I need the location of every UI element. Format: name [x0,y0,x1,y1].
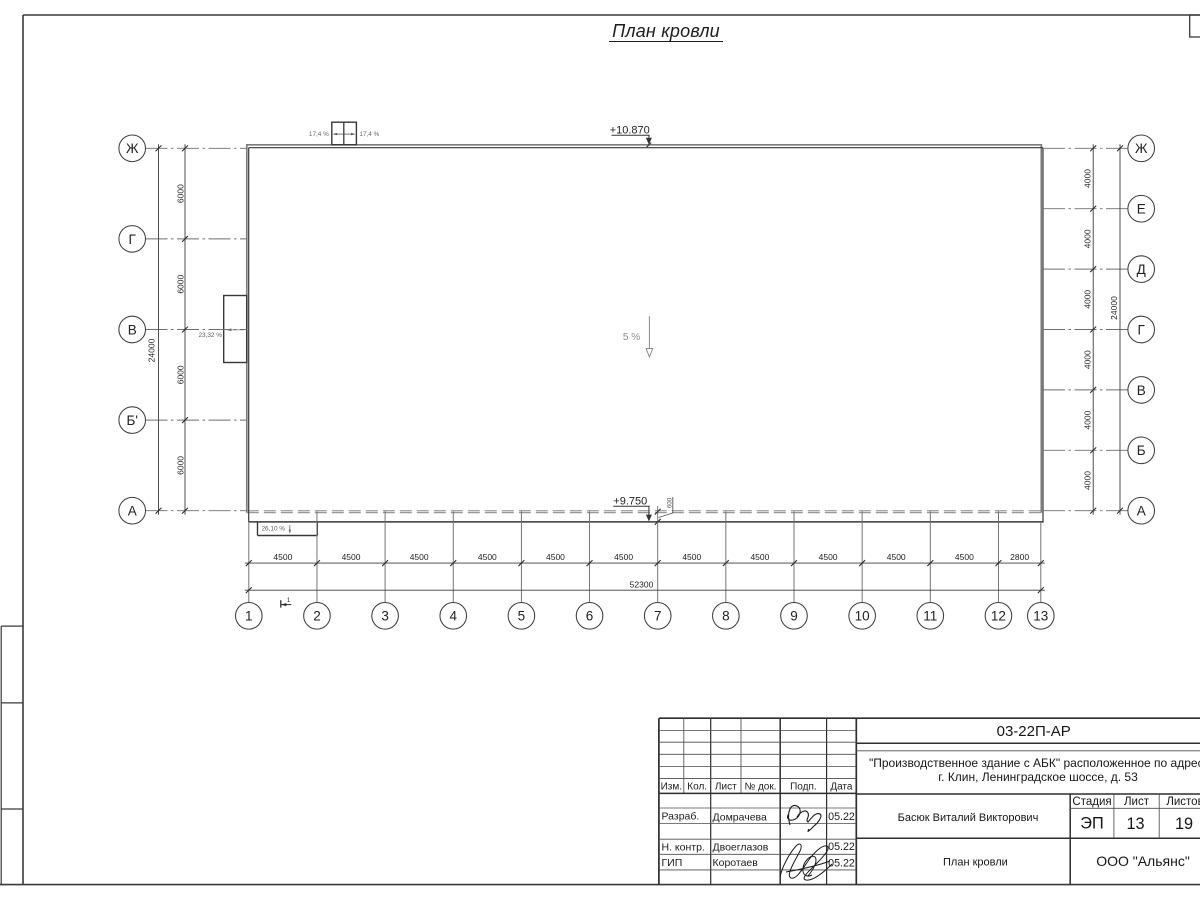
svg-text:4500: 4500 [546,552,565,562]
svg-text:03-22П-АР: 03-22П-АР [997,723,1071,740]
svg-text:Разраб.: Разраб. [662,810,700,822]
svg-text:В: В [1137,383,1146,398]
svg-text:"Производственное здание с АБК: "Производственное здание с АБК" располож… [869,756,1200,770]
svg-text:Н. контр.: Н. контр. [662,841,705,853]
svg-text:4000: 4000 [1082,290,1092,309]
svg-text:6000: 6000 [175,184,185,203]
svg-text:2800: 2800 [1010,552,1029,562]
svg-text:6000: 6000 [175,365,185,384]
svg-text:Лист: Лист [715,782,737,793]
svg-text:4000: 4000 [1082,229,1092,248]
svg-text:9: 9 [790,609,798,624]
svg-text:12: 12 [991,609,1006,624]
svg-text:ЭП: ЭП [1080,815,1103,833]
svg-text:Басюк Виталий Викторович: Басюк Виталий Викторович [898,812,1039,824]
svg-text:17,4 %: 17,4 % [309,131,329,138]
svg-text:4500: 4500 [682,552,701,562]
svg-text:05.22: 05.22 [828,811,855,823]
svg-text:Г: Г [129,232,137,247]
svg-text:6: 6 [586,609,594,624]
svg-text:4500: 4500 [273,552,292,562]
svg-text:4500: 4500 [887,552,906,562]
svg-text:4500: 4500 [819,552,838,562]
svg-text:Кол.: Кол. [687,782,707,793]
svg-text:Ж: Ж [126,141,139,156]
svg-text:3: 3 [381,609,389,624]
svg-text:52300: 52300 [630,579,654,589]
svg-text:4500: 4500 [342,552,361,562]
svg-text:4500: 4500 [955,552,974,562]
svg-text:24000: 24000 [1109,296,1119,320]
svg-text:Г: Г [1138,322,1146,337]
svg-text:Ж: Ж [1135,141,1148,156]
svg-text:Д: Д [1137,262,1146,277]
svg-text:ООО "Альянс": ООО "Альянс" [1096,853,1190,869]
svg-text:4000: 4000 [1082,350,1092,369]
svg-text:7: 7 [654,609,662,624]
svg-text:+9.750: +9.750 [613,495,647,507]
svg-text:Дата: Дата [830,782,853,793]
svg-text:+10.870: +10.870 [610,125,650,137]
svg-text:8: 8 [722,609,730,624]
svg-text:24000: 24000 [146,338,156,362]
svg-text:Б': Б' [126,413,137,428]
svg-text:600: 600 [666,497,673,508]
svg-text:6000: 6000 [175,274,185,293]
svg-text:ГИП: ГИП [662,857,683,869]
svg-text:19: 19 [1175,815,1193,833]
svg-text:4000: 4000 [1082,471,1092,490]
svg-text:4: 4 [449,609,457,624]
svg-text:Листов: Листов [1166,796,1200,808]
svg-text:4500: 4500 [614,552,633,562]
svg-text:План кровли: План кровли [943,857,1008,869]
svg-text:План кровли: План кровли [612,21,720,41]
svg-text:Коротаев: Коротаев [713,857,759,869]
svg-text:Изм.: Изм. [661,782,682,793]
svg-text:13: 13 [1033,609,1048,624]
svg-text:13: 13 [1126,815,1144,833]
svg-text:Стадия: Стадия [1072,796,1111,808]
svg-text:Б: Б [1137,443,1146,458]
svg-text:17,4 %: 17,4 % [359,131,379,138]
svg-text:В: В [128,322,137,337]
svg-text:№ док.: № док. [744,782,776,793]
svg-text:Е: Е [1137,202,1146,217]
svg-text:А: А [1137,504,1146,519]
svg-text:5: 5 [518,609,526,624]
svg-text:А: А [128,504,137,519]
svg-text:Подп.: Подп. [790,782,817,793]
svg-text:4500: 4500 [478,552,497,562]
svg-text:26,10 %: 26,10 % [262,526,286,533]
svg-text:11: 11 [923,609,937,624]
svg-text:10: 10 [855,609,870,624]
svg-text:Домрачева: Домрачева [713,811,768,823]
svg-text:6000: 6000 [175,456,185,475]
svg-text:4000: 4000 [1082,410,1092,429]
svg-text:4500: 4500 [750,552,769,562]
svg-text:05.22: 05.22 [828,857,855,869]
svg-text:4500: 4500 [410,552,429,562]
svg-text:23,32 %: 23,32 % [198,332,222,339]
svg-text:05.22: 05.22 [828,841,855,853]
svg-text:2: 2 [313,609,321,624]
svg-text:1: 1 [245,609,253,624]
svg-text:Двоеглазов: Двоеглазов [713,841,769,853]
svg-text:Лист: Лист [1124,796,1150,808]
svg-text:4000: 4000 [1082,169,1092,188]
svg-text:5 %: 5 % [623,332,640,343]
svg-text:г. Клин, Ленинградское шоссе,: г. Клин, Ленинградское шоссе, д. 53 [938,770,1138,784]
